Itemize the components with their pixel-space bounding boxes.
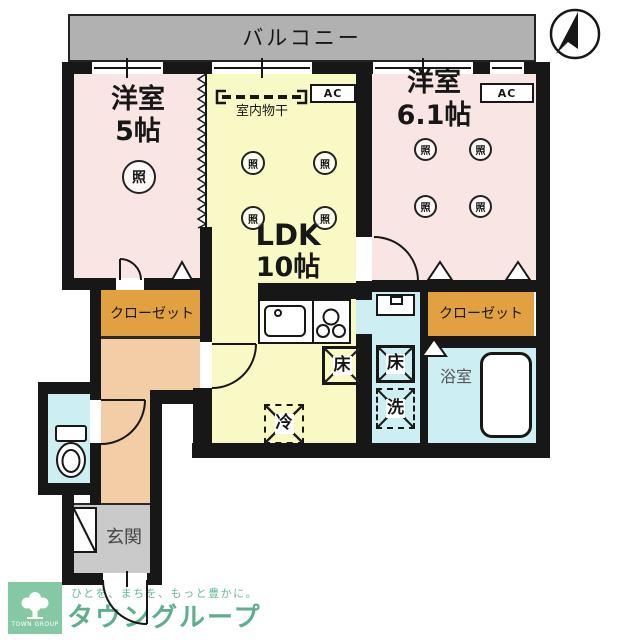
light-symbol: 照 [313,206,337,230]
window-ldk [212,62,312,74]
entrance-label: 玄関 [94,528,154,549]
room-name: 洋室 [372,66,496,99]
washer-label: 洗 [376,388,415,429]
hallway-floor-lower [101,392,150,505]
light-symbol: 照 [313,151,337,175]
room-western-5-label: 洋室 5帖 [78,84,198,148]
room-size: 6.1帖 [372,99,496,132]
light-symbol: 照 [414,195,437,218]
door-opening-entrance [103,573,147,585]
balcony-label-wrap: バルコニー [68,26,536,50]
entrance-text: 玄関 [106,527,142,548]
refrigerator-label: 冷 [264,404,304,444]
room-name: 洋室 [78,84,198,116]
wall-bath-top [420,336,550,348]
window-room1 [92,62,163,74]
ac-label: AC [498,87,517,100]
wall-entrance-bottom-a [62,573,103,585]
floor-plan: AC AC [0,0,641,640]
logo-org-text: TOWN GROUP [11,621,58,628]
wall-vert-a [356,62,372,237]
logo-brand: タウングループ [67,597,261,634]
balcony-label: バルコニー [242,26,362,50]
light-symbol: 照 [469,138,492,161]
door-opening-room1 [116,278,144,290]
closet-text: クローゼット [110,306,194,322]
wall-toilet-top [38,382,101,394]
room-western-61-label: 洋室 6.1帖 [372,66,496,132]
light-symbol: 照 [241,206,265,230]
wall-entrance-right [150,390,162,585]
wall-toilet-left [38,382,48,495]
light-symbol: 照 [241,151,265,175]
door-opening-hall-ldk [200,342,212,388]
door-opening-toilet [90,400,101,443]
closet-text: クローゼット [439,306,523,322]
floor-storage-label: 床 [376,345,415,383]
wall-entrance-bottom-b [147,573,162,585]
north-arrow-icon [551,10,599,58]
closet2-label: クローゼット [428,292,534,336]
room-size: 10帖 [226,252,350,283]
bathroom-label: 浴室 [426,368,486,386]
wall-left-upper [62,62,74,290]
toilet-floor [48,394,90,483]
vanity-tab [390,296,403,305]
floor-storage-label: 床 [322,346,362,385]
closet1-label: クローゼット [101,290,203,338]
light-symbol: 照 [414,138,437,161]
indoor-drying-text: 室内物干 [236,104,288,119]
ac-label: AC [324,87,343,100]
ldk-label: LDK 10帖 [226,219,350,283]
wall-closet-left-b [90,443,101,505]
light-symbol: 照 [122,160,156,194]
bathroom-text: 浴室 [440,367,472,386]
indoor-drying-label: 室内物干 [214,105,310,120]
logo-org-label: TOWN GROUP [8,622,62,629]
bathtub [480,352,532,438]
kitchen-counter [258,299,351,344]
ac-box-ldk: AC [310,84,356,103]
wall-room2-bottom [358,280,550,292]
door-opening-room2 [356,237,372,281]
wall-kitchen-band [258,283,372,299]
logo-brand-text: タウングループ [67,603,261,633]
light-symbol: 照 [469,195,492,218]
hallway-floor-upper [101,338,203,392]
washroom-entry-opening [356,300,372,334]
wall-bottom-main [192,443,550,458]
room-size: 5帖 [78,116,198,148]
entrance-step-line [72,503,150,505]
wall-right-outer [536,62,550,458]
wall-toilet-bottom [38,483,101,495]
